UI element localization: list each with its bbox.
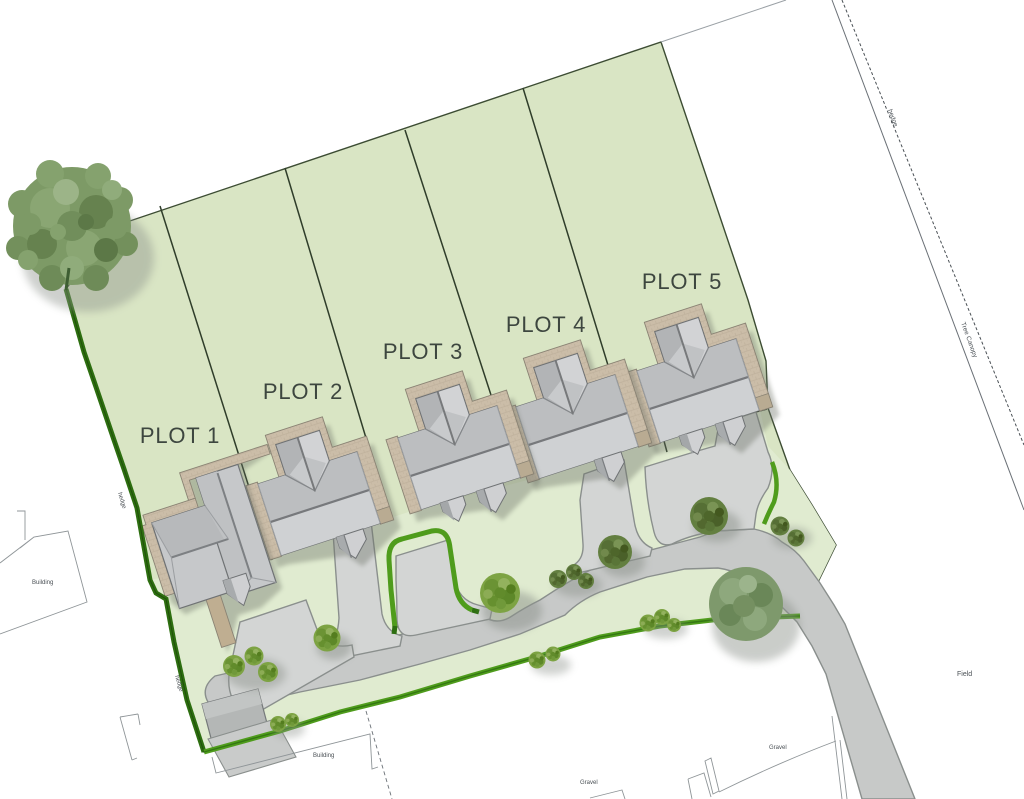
svg-text:PLOT 4: PLOT 4 <box>506 312 586 337</box>
svg-text:Building: Building <box>32 580 53 586</box>
svg-text:Gravel: Gravel <box>580 780 598 786</box>
svg-text:Field: Field <box>957 671 972 678</box>
svg-text:Building: Building <box>313 753 334 759</box>
svg-text:Gravel: Gravel <box>769 745 787 751</box>
svg-text:PLOT 5: PLOT 5 <box>642 269 722 294</box>
svg-text:PLOT 1: PLOT 1 <box>140 423 220 448</box>
svg-text:PLOT 2: PLOT 2 <box>263 379 343 404</box>
svg-text:PLOT 3: PLOT 3 <box>383 339 463 364</box>
